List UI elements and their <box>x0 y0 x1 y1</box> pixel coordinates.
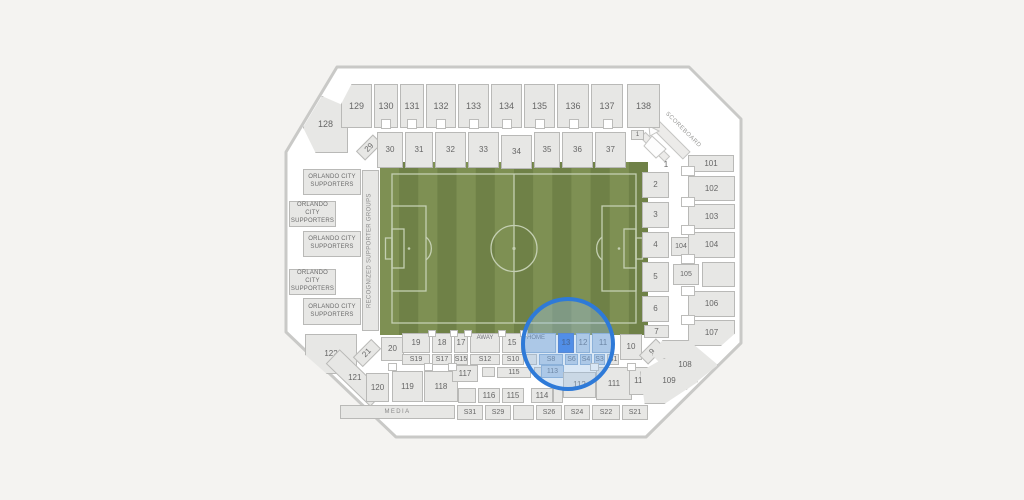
section-label: S8 <box>547 356 556 363</box>
section-s8[interactable]: S8 <box>539 354 563 365</box>
section-label: S21 <box>629 409 641 416</box>
section-s21[interactable]: S21 <box>622 405 648 420</box>
section-label: 121 <box>348 374 361 382</box>
section-4[interactable]: 4 <box>642 232 669 258</box>
section-label: 17 <box>457 339 466 347</box>
section-label: S12 <box>479 356 491 363</box>
section-111[interactable]: 111 <box>596 367 632 400</box>
entrance-notch <box>569 119 579 129</box>
entrance-notch <box>436 119 446 129</box>
section-13[interactable]: 13 <box>558 333 574 353</box>
section-label: 129 <box>349 102 364 111</box>
section-label: 36 <box>573 146 582 154</box>
section-label: 128 <box>318 120 333 129</box>
section-label: 120 <box>371 384 384 392</box>
entrance-notch <box>520 330 528 337</box>
section-label: 106 <box>705 300 718 308</box>
section-label: 1 <box>636 132 639 138</box>
entrance-notch <box>681 254 695 264</box>
section-label: 12 <box>579 339 588 347</box>
section-label: 104 <box>705 241 718 249</box>
section-label: 34 <box>512 148 521 156</box>
section-label: 32 <box>446 146 455 154</box>
section-label: 115 <box>507 392 520 400</box>
section-label: 119 <box>401 383 414 391</box>
section-label: 2 <box>653 181 657 189</box>
section-label: 131 <box>404 102 419 111</box>
section-sup3[interactable]: ORLANDO CITY SUPPORTERS <box>303 231 361 257</box>
entrance-notch <box>498 330 506 337</box>
section-label: 114 <box>536 392 549 400</box>
section-label: 133 <box>466 102 481 111</box>
section-label: 116 <box>483 392 496 400</box>
section-sup5[interactable]: ORLANDO CITY SUPPORTERS <box>303 298 361 325</box>
section-label: 35 <box>543 146 552 154</box>
entrance-notch <box>502 119 512 129</box>
section-label: AWAY <box>477 335 494 341</box>
entrance-notch <box>464 330 472 337</box>
section-gate1: 1 <box>631 130 644 140</box>
section-120[interactable]: 120 <box>366 373 389 402</box>
section-104[interactable]: 104 <box>688 232 735 258</box>
sections-layer: 1281291301311321331341351361371382930313… <box>0 0 1024 500</box>
section-label: S3 <box>595 356 604 363</box>
section-label: 101 <box>704 160 717 168</box>
section-label: ORLANDO CITY SUPPORTERS <box>304 236 360 252</box>
section-label: 118 <box>435 383 448 391</box>
section-12[interactable]: 12 <box>576 333 590 353</box>
entrance-notch <box>535 119 545 129</box>
section-label: 115 <box>508 369 519 376</box>
section-label: 37 <box>606 146 615 154</box>
entrance-notch <box>448 363 457 371</box>
section-34[interactable]: 34 <box>501 135 532 169</box>
section-label: 132 <box>433 102 448 111</box>
section-label: S10 <box>507 356 519 363</box>
section-138[interactable]: 138 <box>627 84 660 128</box>
section-label: ORLANDO CITY SUPPORTERS <box>304 174 360 190</box>
section-label: 11 <box>599 339 607 347</box>
section-label: 19 <box>412 339 421 347</box>
section-label: 20 <box>388 345 397 353</box>
section-sup4[interactable]: ORLANDO CITY SUPPORTERS <box>289 269 336 295</box>
section-label: 103 <box>705 213 718 221</box>
section-label: 3 <box>653 211 657 219</box>
section-label: 107 <box>705 329 718 337</box>
section-105o <box>702 262 735 287</box>
section-label: 7 <box>654 328 658 336</box>
section-label: 5 <box>653 273 657 281</box>
section-label: 111 <box>608 380 620 388</box>
section-label: 18 <box>438 339 447 347</box>
section-s29[interactable]: S29 <box>485 405 511 420</box>
entrance-notch <box>627 363 636 371</box>
section-5[interactable]: 5 <box>642 262 669 292</box>
section-label: 15 <box>508 339 517 347</box>
section-label: 112 <box>573 381 586 389</box>
section-33[interactable]: 33 <box>468 132 499 168</box>
section-c2 <box>553 388 563 403</box>
section-label: 137 <box>599 102 614 111</box>
entrance-notch <box>424 363 433 371</box>
section-sup1[interactable]: ORLANDO CITY SUPPORTERS <box>303 169 361 195</box>
section-label: 135 <box>532 102 547 111</box>
entrance-notch <box>681 166 695 176</box>
entrance-notch <box>469 119 479 129</box>
stadium-seatmap: 1281291301311321331341351361371382930313… <box>0 0 1024 500</box>
section-114[interactable]: 114 <box>531 388 553 403</box>
section-37[interactable]: 37 <box>595 132 626 168</box>
section-label: ORLANDO CITY SUPPORTERS <box>290 202 335 225</box>
section-s10[interactable]: S10 <box>502 354 524 365</box>
section-label: 117 <box>459 370 472 378</box>
entrance-notch <box>681 286 695 296</box>
section-label: ORLANDO CITY SUPPORTERS <box>290 270 335 293</box>
section-label: 6 <box>653 305 657 313</box>
section-119[interactable]: 119 <box>392 371 423 402</box>
section-label: S17 <box>436 356 448 363</box>
entrance-notch <box>388 363 397 371</box>
section-s24[interactable]: S24 <box>564 405 590 420</box>
section-21[interactable]: 21 <box>353 339 381 367</box>
section-label: S19 <box>410 356 422 363</box>
section-6[interactable]: 6 <box>642 296 669 322</box>
section-s6[interactable]: S6 <box>565 354 578 365</box>
section-rsg[interactable]: RECOGNIZED SUPPORTER GROUPS <box>362 170 379 331</box>
section-label: S26 <box>543 409 555 416</box>
section-label: 1 <box>664 161 668 169</box>
section-sup2[interactable]: ORLANDO CITY SUPPORTERS <box>289 201 336 227</box>
section-label: 33 <box>479 146 488 154</box>
section-115b[interactable]: 115 <box>502 388 524 403</box>
section-label: MEDIA <box>384 409 410 415</box>
section-102[interactable]: 102 <box>688 176 735 201</box>
entrance-notch <box>428 330 436 337</box>
section-label: 109 <box>662 377 675 385</box>
section-label: 29 <box>363 142 375 154</box>
section-115u[interactable]: 115 <box>497 367 531 378</box>
section-129[interactable]: 129 <box>341 84 372 128</box>
section-label: 102 <box>705 185 718 193</box>
section-s31[interactable]: S31 <box>457 405 483 420</box>
section-20[interactable]: 20 <box>381 337 404 361</box>
section-label: 138 <box>636 102 651 111</box>
section-b1 <box>482 367 495 377</box>
entrance-notch <box>590 363 599 371</box>
section-label: 4 <box>653 241 657 249</box>
section-label: S22 <box>600 409 612 416</box>
entrance-notch <box>603 119 613 129</box>
section-label: 13 <box>562 339 571 347</box>
section-label: 134 <box>499 102 514 111</box>
section-35[interactable]: 35 <box>534 132 560 168</box>
section-label: HOME <box>527 335 545 341</box>
section-s26[interactable]: S26 <box>536 405 562 420</box>
section-label: 104 <box>675 243 687 250</box>
section-19[interactable]: 19 <box>402 333 430 353</box>
section-2[interactable]: 2 <box>642 172 669 198</box>
section-36[interactable]: 36 <box>562 132 593 168</box>
entrance-notch <box>681 197 695 207</box>
section-105i[interactable]: 105 <box>673 264 699 285</box>
section-label: 10 <box>627 343 636 351</box>
section-c0 <box>458 388 476 403</box>
section-3[interactable]: 3 <box>642 202 669 228</box>
section-103[interactable]: 103 <box>688 204 735 229</box>
section-label: S6 <box>567 356 576 363</box>
section-7[interactable]: 7 <box>644 325 669 338</box>
section-s12[interactable]: S12 <box>470 354 500 365</box>
section-label: 30 <box>386 146 395 154</box>
section-31[interactable]: 31 <box>405 132 433 168</box>
entrance-notch <box>450 330 458 337</box>
entrance-notch <box>681 225 695 235</box>
section-label: 105 <box>680 271 692 278</box>
section-bb <box>513 405 534 420</box>
section-label: S4 <box>582 356 591 363</box>
section-106[interactable]: 106 <box>688 291 735 317</box>
section-label: 31 <box>415 146 424 154</box>
section-107[interactable]: 107 <box>688 320 735 346</box>
section-label: S29 <box>492 409 504 416</box>
section-112[interactable]: 112 <box>563 372 596 398</box>
section-1[interactable]: 1 <box>658 159 674 171</box>
section-s1[interactable]: S1 <box>607 354 619 365</box>
section-home[interactable]: HOME <box>524 333 556 353</box>
entrance-notch <box>681 315 695 325</box>
section-label: 136 <box>565 102 580 111</box>
section-media: MEDIA <box>340 405 455 419</box>
section-label: S1 <box>609 356 618 363</box>
section-label: 21 <box>361 347 373 359</box>
section-113[interactable]: 113 <box>541 365 564 378</box>
section-30[interactable]: 30 <box>377 132 403 168</box>
section-s22[interactable]: S22 <box>592 405 620 420</box>
section-label: 108 <box>678 361 691 369</box>
section-label: RECOGNIZED SUPPORTER GROUPS <box>367 193 375 308</box>
section-label: S24 <box>571 409 583 416</box>
section-label: SCOREBOARD <box>664 111 702 149</box>
section-label: 113 <box>547 368 558 375</box>
section-116[interactable]: 116 <box>478 388 500 403</box>
section-label: 130 <box>378 102 393 111</box>
section-away[interactable]: AWAY <box>470 333 500 353</box>
entrance-notch <box>407 119 417 129</box>
entrance-notch <box>381 119 391 129</box>
section-bs <box>526 354 537 365</box>
section-32[interactable]: 32 <box>435 132 466 168</box>
section-11[interactable]: 11 <box>592 333 614 353</box>
section-label: S31 <box>464 409 476 416</box>
section-label: ORLANDO CITY SUPPORTERS <box>304 304 360 320</box>
section-scoreboard: SCOREBOARD <box>658 105 707 154</box>
section-label: S15 <box>455 356 467 363</box>
